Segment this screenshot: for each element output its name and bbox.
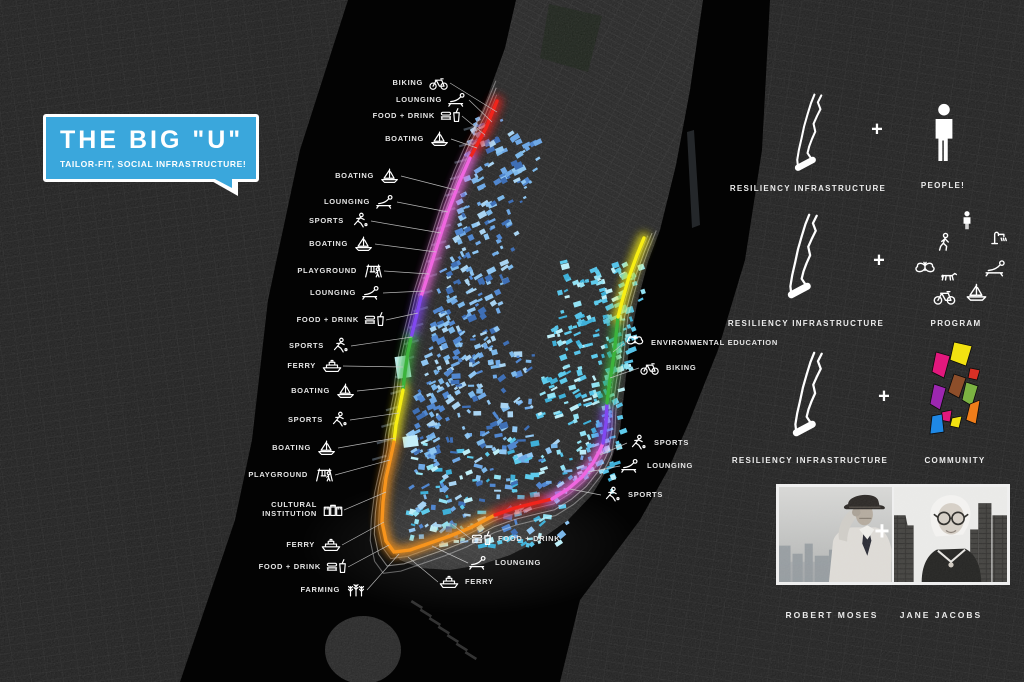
legend-row3-right-label: COMMUNITY — [924, 456, 985, 465]
biking-icon — [932, 286, 958, 306]
dog-icon — [938, 264, 964, 284]
plus-icon: + — [871, 119, 883, 142]
boating-icon — [964, 282, 990, 302]
manhattan-outline-icon — [783, 212, 841, 306]
robert-moses-name: ROBERT MOSES — [786, 610, 879, 620]
plus-icon: + — [873, 250, 885, 273]
jane-jacobs-photo — [892, 487, 1007, 582]
legend-row1-left-label: RESILIENCY INFRASTRUCTURE — [730, 184, 886, 193]
legend-row3-left-label: RESILIENCY INFRASTRUCTURE — [732, 456, 888, 465]
bubble-tail-fill — [211, 177, 232, 188]
butterfly-icon — [912, 260, 938, 280]
jane-jacobs-name: JANE JACOBS — [900, 610, 982, 620]
title-bubble: THE BIG "U" TAILOR-FIT, SOCIAL INFRASTRU… — [43, 114, 259, 182]
legend-row2-left-label: RESILIENCY INFRASTRUCTURE — [728, 319, 884, 328]
plus-icon: + — [874, 516, 889, 547]
person-icon — [954, 210, 980, 230]
program-icon-cluster — [902, 208, 1014, 310]
lounging-icon — [984, 258, 1010, 278]
person-icon — [930, 102, 958, 164]
poster-title: THE BIG "U" — [60, 126, 246, 155]
legend-row1-right-label: PEOPLE! — [921, 181, 965, 190]
poster-subtitle: TAILOR-FIT, SOCIAL INFRASTRUCTURE! — [60, 159, 246, 169]
legend-row2-right-label: PROGRAM — [931, 319, 982, 328]
portrait-photos — [776, 484, 1010, 585]
walking-icon — [932, 232, 958, 252]
plus-icon: + — [878, 386, 890, 409]
big-u-poster: THE BIG "U" TAILOR-FIT, SOCIAL INFRASTRU… — [0, 0, 1024, 682]
community-districts-map — [926, 340, 980, 444]
manhattan-outline-icon — [790, 92, 844, 178]
manhattan-outline-icon — [788, 350, 846, 444]
water-pump-icon — [986, 226, 1012, 246]
